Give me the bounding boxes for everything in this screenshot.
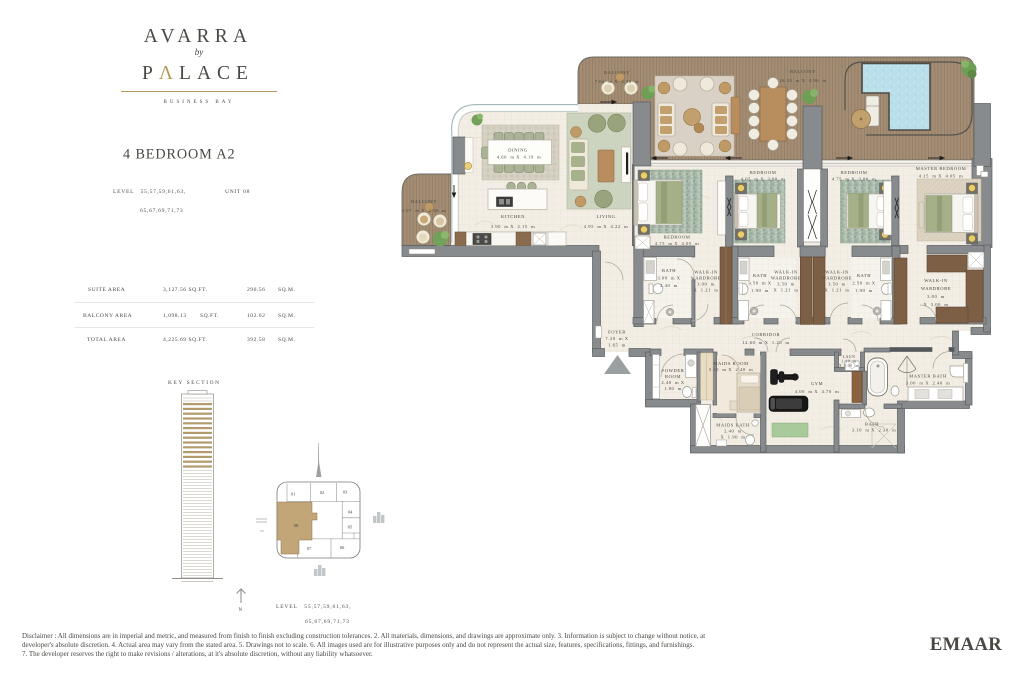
svg-text:02: 02 xyxy=(320,490,325,495)
svg-text:BATH: BATH xyxy=(662,268,676,273)
svg-text:WARDROBE: WARDROBE xyxy=(822,276,852,281)
svg-text:16.35 m X 4.96 m: 16.35 m X 4.96 m xyxy=(779,78,826,83)
svg-text:3.50 m: 3.50 m xyxy=(828,282,846,287)
svg-text:4.00 m X 4.70 m: 4.00 m X 4.70 m xyxy=(795,389,839,394)
svg-text:KITCHEN: KITCHEN xyxy=(501,214,525,219)
svg-text:WARDROBE: WARDROBE xyxy=(771,276,801,281)
svg-text:7. The developer reserves the: 7. The developer reserves the right to m… xyxy=(22,650,373,658)
svg-text:by: by xyxy=(195,47,204,57)
svg-text:LEVEL 55,57,59,61,63,: LEVEL 55,57,59,61,63, xyxy=(113,189,186,195)
svg-text:04: 04 xyxy=(348,510,353,515)
svg-text:SUITE AREA: SUITE AREA xyxy=(88,287,125,293)
svg-text:2.40 m: 2.40 m xyxy=(724,429,742,434)
svg-text:7.62 m X 2.36 m: 7.62 m X 2.36 m xyxy=(595,79,639,84)
svg-text:65,67,69,71,73: 65,67,69,71,73 xyxy=(140,208,183,214)
svg-text:BALCONY AREA: BALCONY AREA xyxy=(83,313,132,319)
svg-text:BATH: BATH xyxy=(753,273,767,278)
svg-text:1.90 m: 1.90 m xyxy=(751,288,769,293)
svg-text:WALK-IN: WALK-IN xyxy=(825,270,849,275)
svg-text:4.75 m X 3.80 m: 4.75 m X 3.80 m xyxy=(832,177,876,182)
svg-text:WALK-IN: WALK-IN xyxy=(774,270,798,275)
svg-text:3.50 m X: 3.50 m X xyxy=(748,281,771,286)
svg-text:LIVING: LIVING xyxy=(596,214,615,219)
svg-text:4,225.69 SQ.FT.: 4,225.69 SQ.FT. xyxy=(163,337,208,343)
svg-text:X 0.90 m: X 0.90 m xyxy=(839,364,859,368)
svg-text:BALCONY: BALCONY xyxy=(604,70,630,75)
svg-text:1.10 m: 1.10 m xyxy=(841,360,856,364)
svg-text:SQ.M.: SQ.M. xyxy=(278,337,296,343)
svg-text:2.50 m X: 2.50 m X xyxy=(852,281,875,286)
svg-text:7.20 m X: 7.20 m X xyxy=(605,336,628,341)
svg-text:KEY SECTION: KEY SECTION xyxy=(168,380,221,386)
svg-text:POWDER: POWDER xyxy=(662,368,685,373)
svg-text:MASTER BATH: MASTER BATH xyxy=(909,374,947,379)
svg-text:BATH: BATH xyxy=(857,273,871,278)
svg-text:developer's absolute discretio: developer's absolute discretion. 4. Actu… xyxy=(22,641,695,649)
svg-text:CORRIDOR: CORRIDOR xyxy=(752,332,781,337)
svg-text:03: 03 xyxy=(343,490,348,495)
svg-text:X 3.00 m: X 3.00 m xyxy=(923,302,948,307)
svg-text:EMAAR: EMAAR xyxy=(930,634,1002,655)
svg-text:MAIDS BATH: MAIDS BATH xyxy=(716,423,750,428)
svg-text:BALCONY: BALCONY xyxy=(411,199,437,204)
svg-text:4.05 m X 3.80 m: 4.05 m X 3.80 m xyxy=(741,177,785,182)
svg-text:4.15 m X 4.05 m: 4.15 m X 4.05 m xyxy=(919,174,963,179)
svg-text:BEDROOM: BEDROOM xyxy=(750,170,777,175)
svg-text:3,127.56 SQ.FT.: 3,127.56 SQ.FT. xyxy=(163,287,208,293)
svg-text:3.97 m X 2.36 m: 3.97 m X 2.36 m xyxy=(402,208,446,213)
svg-text:ROOM: ROOM xyxy=(665,374,681,379)
svg-text:UNIT 08: UNIT 08 xyxy=(225,189,250,195)
svg-text:3.00 m X: 3.00 m X xyxy=(657,276,680,281)
svg-text:05: 05 xyxy=(348,525,353,530)
svg-text:BEDROOM: BEDROOM xyxy=(664,235,691,240)
svg-text:PΛLACE: PΛLACE xyxy=(142,63,254,84)
svg-text:2.40 m: 2.40 m xyxy=(660,283,678,288)
svg-text:3.00 m X 2.40 m: 3.00 m X 2.40 m xyxy=(906,381,950,386)
svg-text:65,67,69,71,73: 65,67,69,71,73 xyxy=(305,619,350,625)
svg-text:MASTER BEDROOM: MASTER BEDROOM xyxy=(916,166,966,171)
svg-text:3.00 m: 3.00 m xyxy=(697,282,715,287)
svg-text:WALK-IN: WALK-IN xyxy=(924,278,948,283)
svg-text:TOTAL AREA: TOTAL AREA xyxy=(87,337,126,343)
svg-text:06: 06 xyxy=(340,545,345,550)
svg-text:392.58: 392.58 xyxy=(247,337,265,343)
svg-text:3.10 m X 2.30 m: 3.10 m X 2.30 m xyxy=(852,428,896,433)
svg-text:1,098.13: 1,098.13 xyxy=(163,313,187,319)
svg-text:X 1.21 m: X 1.21 m xyxy=(693,288,718,293)
svg-text:1.65 m: 1.65 m xyxy=(608,343,626,348)
svg-text:LEVEL 55,57,59,61,63,: LEVEL 55,57,59,61,63, xyxy=(276,604,351,610)
svg-text:X 1.90 m: X 1.90 m xyxy=(720,435,745,440)
svg-text:WARDROBE: WARDROBE xyxy=(691,276,721,281)
svg-text:LAUN: LAUN xyxy=(843,355,856,359)
svg-text:1.90 m: 1.90 m xyxy=(855,288,873,293)
svg-text:Disclaimer : All dimensions ar: Disclaimer : All dimensions are in imper… xyxy=(22,632,705,640)
svg-text:BALCONY: BALCONY xyxy=(790,69,816,74)
svg-text:08: 08 xyxy=(294,523,299,528)
svg-text:3.90 m X 2.15 m: 3.90 m X 2.15 m xyxy=(491,224,535,229)
svg-text:SQ.M.: SQ.M. xyxy=(278,287,296,293)
svg-text:GYM: GYM xyxy=(811,381,823,386)
svg-text:4 BEDROOM A2: 4 BEDROOM A2 xyxy=(123,147,236,163)
svg-text:3.10 m X 2.40 m: 3.10 m X 2.40 m xyxy=(709,367,753,372)
svg-text:4.75 m X 4.05 m: 4.75 m X 4.05 m xyxy=(655,241,699,246)
svg-text:2.40 m X: 2.40 m X xyxy=(661,380,684,385)
svg-text:X 1.21 m: X 1.21 m xyxy=(824,288,849,293)
svg-text:102.02: 102.02 xyxy=(247,313,265,319)
svg-text:290.56: 290.56 xyxy=(247,287,265,293)
svg-text:MAIDS ROOM: MAIDS ROOM xyxy=(713,361,748,366)
svg-text:4.95 m X 4.22 m: 4.95 m X 4.22 m xyxy=(584,224,628,229)
svg-text:X 1.21 m: X 1.21 m xyxy=(773,288,798,293)
svg-text:3.00 m: 3.00 m xyxy=(927,294,945,299)
svg-text:01: 01 xyxy=(291,492,296,497)
svg-text:07: 07 xyxy=(307,546,312,551)
svg-text:FOYER: FOYER xyxy=(608,330,626,335)
svg-text:BUSINESS BAY: BUSINESS BAY xyxy=(164,100,235,105)
svg-text:BEDROOM: BEDROOM xyxy=(841,170,868,175)
svg-text:SQ.M.: SQ.M. xyxy=(278,313,296,319)
svg-text:1.80 m: 1.80 m xyxy=(664,386,682,391)
svg-text:WALK-IN: WALK-IN xyxy=(694,270,718,275)
svg-text:4.60 m X 4.19 m: 4.60 m X 4.19 m xyxy=(497,155,541,160)
svg-text:N: N xyxy=(239,608,243,613)
svg-text:SQ.FT.: SQ.FT. xyxy=(200,313,219,319)
svg-text:AVARRA: AVARRA xyxy=(144,26,253,47)
svg-text:DINING: DINING xyxy=(508,148,528,153)
svg-text:3.50 m: 3.50 m xyxy=(777,282,795,287)
svg-text:WARDROBE: WARDROBE xyxy=(921,286,951,291)
